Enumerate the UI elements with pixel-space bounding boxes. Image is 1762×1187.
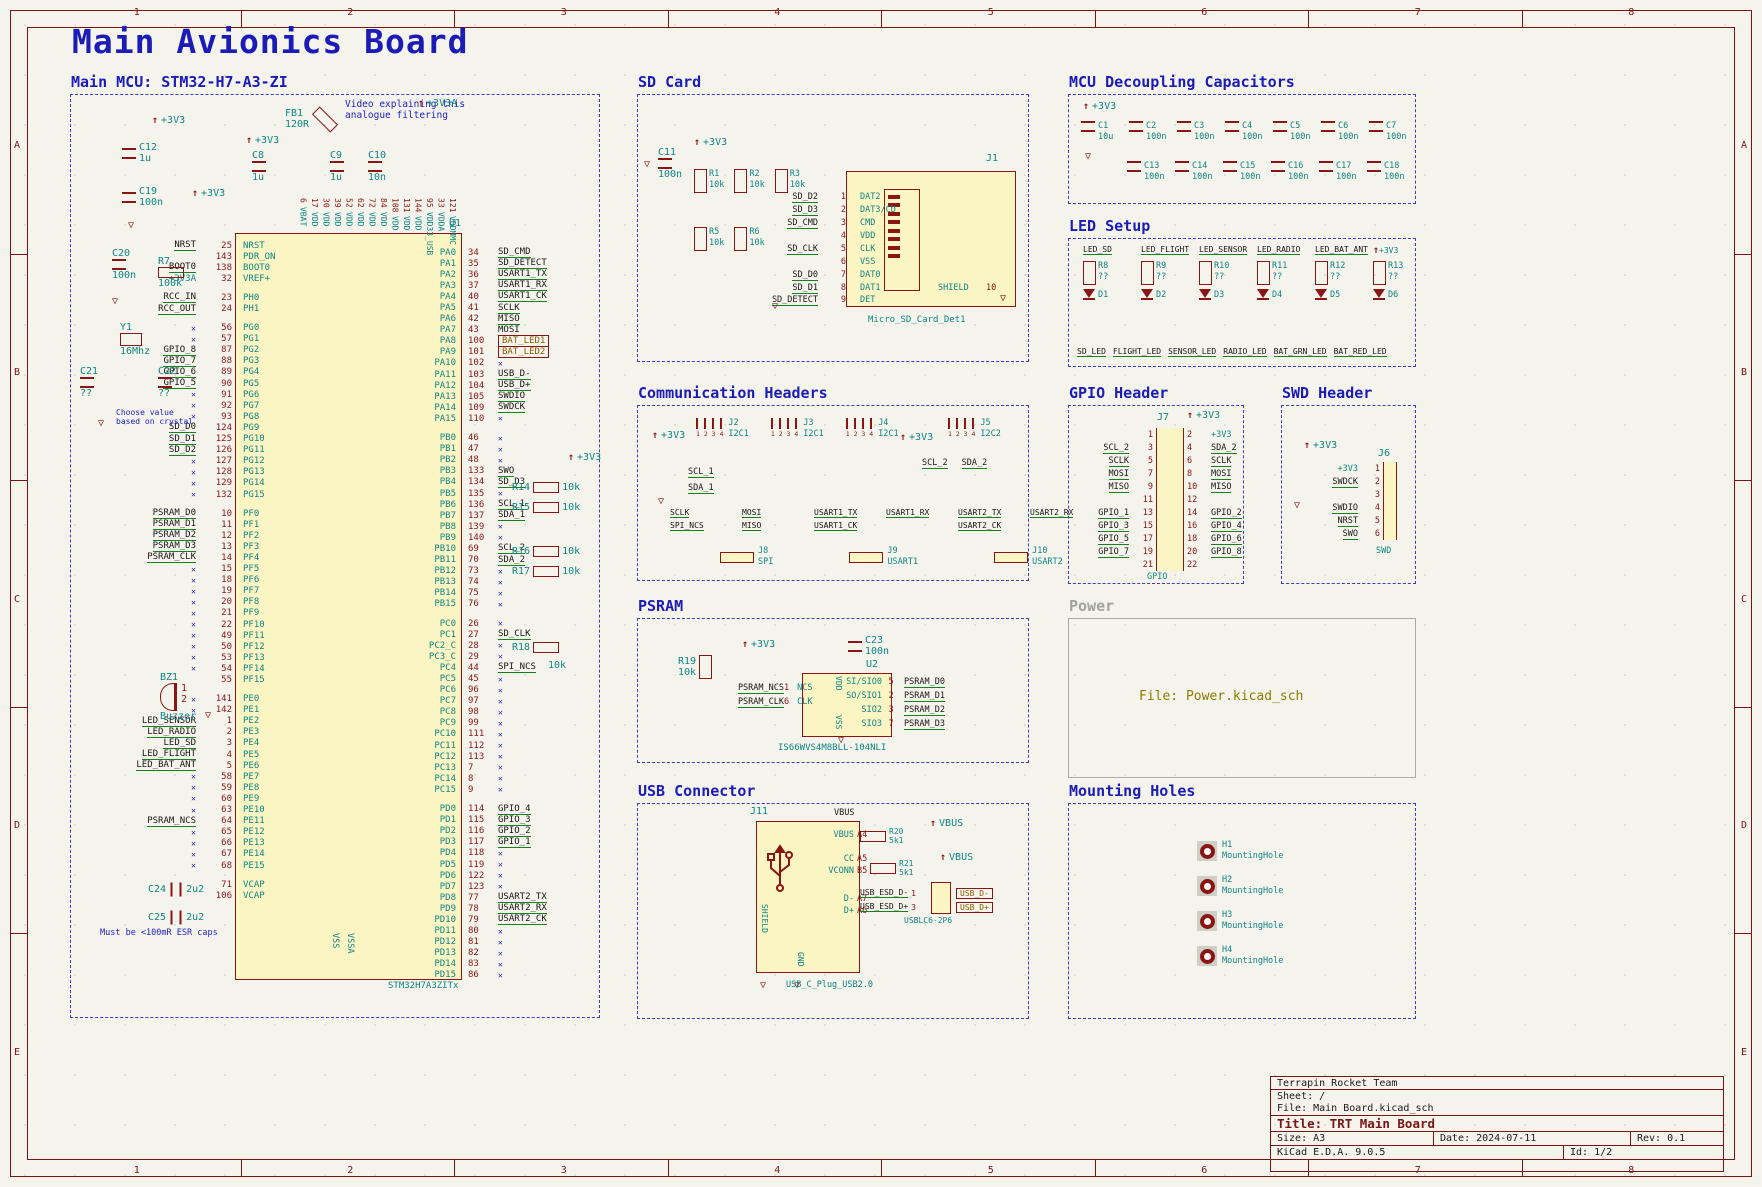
no-connect-icon[interactable]: ✕ (498, 456, 549, 465)
net-label[interactable]: SD_DETECT (498, 258, 549, 269)
net-label[interactable]: LED_RADIO (1257, 245, 1300, 257)
capacitor-c23[interactable]: C23100n (848, 635, 889, 657)
net-label[interactable]: MISO (1073, 482, 1133, 492)
no-connect-icon[interactable]: ✕ (498, 619, 549, 628)
net-label[interactable]: LED_BAT_ANT (136, 760, 196, 771)
net-label-wrap[interactable]: SCLK (670, 506, 728, 519)
led-diode[interactable]: D3 (1199, 289, 1224, 300)
esd-chip-body[interactable] (931, 882, 951, 914)
gpio-pin-row[interactable]: MOSI78MOSI (1073, 467, 1242, 480)
decoupling-capacitor[interactable]: C18100n (1367, 161, 1409, 183)
net-label[interactable]: USB_D+ (498, 380, 549, 391)
no-connect-icon[interactable]: ✕ (498, 960, 549, 969)
net-label[interactable]: SD_CLK (668, 244, 818, 254)
net-label[interactable]: USART1_CK (498, 291, 549, 302)
net-label[interactable]: BAT_LED1 (498, 336, 549, 346)
no-connect-icon[interactable]: ✕ (498, 785, 549, 794)
pin-header-symbol[interactable]: 1 2 3 4J4I2C1 (846, 418, 899, 440)
net-label[interactable]: USB_ESD_D- (860, 888, 908, 898)
net-label[interactable]: PSRAM_CLK (36, 552, 196, 563)
net-label[interactable]: FLIGHT_LED (1113, 347, 1161, 357)
net-label[interactable]: SWO (1343, 529, 1358, 540)
net-label[interactable]: USB_D- (498, 369, 549, 380)
no-connect-icon[interactable]: ✕ (498, 434, 549, 443)
net-label[interactable]: NRST (1288, 516, 1362, 526)
no-connect-icon[interactable]: ✕ (498, 730, 549, 739)
gpio-pin-row[interactable]: GPIO_11314GPIO_2 (1073, 506, 1242, 519)
no-connect-icon[interactable]: ✕ (498, 686, 549, 695)
net-label[interactable]: GPIO_8 (36, 345, 196, 356)
net-label[interactable]: PSRAM_D1 (153, 519, 196, 530)
power-flag-vbus[interactable]: ↑VBUS (940, 852, 973, 863)
net-label[interactable]: SCLK (1209, 456, 1242, 466)
net-label[interactable]: PSRAM_NCS (738, 683, 784, 694)
net-label[interactable]: SD_DETECT (668, 295, 818, 305)
net-label[interactable]: SCLK (1211, 456, 1231, 467)
no-connect-icon[interactable]: ✕ (498, 652, 549, 661)
net-label[interactable]: +3V3 (1288, 464, 1362, 474)
net-label[interactable]: SWDIO (498, 391, 525, 402)
gnd-icon[interactable]: ▽ (1000, 295, 1006, 303)
capacitor-c25[interactable]: C252u2 (148, 912, 204, 923)
capacitor-c21[interactable]: C21?? (80, 366, 98, 399)
net-label[interactable]: USART2_TX (498, 892, 549, 903)
net-label[interactable]: SD_LED (1077, 347, 1106, 357)
net-label[interactable]: SD_CMD (787, 218, 818, 229)
net-label[interactable]: GPIO_5 (1098, 534, 1129, 545)
net-label[interactable]: SD_D2 (792, 192, 818, 203)
no-connect-icon[interactable]: ✕ (498, 949, 549, 958)
no-connect-icon[interactable]: ✕ (498, 752, 549, 761)
net-label[interactable]: GPIO_3 (1073, 521, 1133, 531)
pin-header-symbol[interactable]: J10USART2 (994, 546, 1063, 568)
led-resistor[interactable]: R9?? (1141, 261, 1166, 285)
capacitor-c20[interactable]: C20100n (112, 248, 136, 281)
net-label[interactable]: SCLK (1073, 456, 1133, 466)
net-label[interactable]: SD_DETECT (772, 295, 818, 306)
net-label[interactable]: GPIO_6 (1209, 534, 1242, 544)
power-label[interactable]: +3V3 (1338, 464, 1358, 474)
buzzer-bz1[interactable]: BZ112Buzzer (160, 672, 196, 722)
note-crystal-value[interactable]: Choose value based on crystal (116, 408, 193, 426)
net-label[interactable]: SD_CLK (498, 629, 549, 640)
net-label[interactable]: SD_D3 (668, 205, 818, 215)
net-label[interactable]: SWDIO (498, 391, 549, 402)
led-resistor[interactable]: R10?? (1199, 261, 1229, 285)
mounting-hole-item[interactable]: H3MountingHole (1197, 910, 1283, 932)
no-connect-icon[interactable]: ✕ (498, 697, 549, 706)
net-label[interactable]: USART2_CK (498, 914, 547, 925)
net-label[interactable]: PSRAM_D2 (153, 530, 196, 541)
net-label-wrap[interactable]: SD_LED (1077, 347, 1106, 356)
net-label[interactable]: SD_D3 (792, 205, 818, 216)
no-connect-icon[interactable]: ✕ (36, 631, 196, 640)
pullup-resistor[interactable]: R1610k (512, 546, 580, 557)
net-label[interactable]: USART1_RX (498, 280, 549, 291)
pin-header-symbol[interactable]: J8SPI (720, 546, 773, 568)
net-label[interactable]: LED_RADIO (1257, 245, 1300, 255)
no-connect-icon[interactable]: ✕ (498, 445, 549, 454)
decoupling-capacitor[interactable]: C2100n (1129, 121, 1171, 143)
net-label[interactable]: GPIO_6 (1211, 534, 1242, 545)
net-label[interactable]: SDA_2 (1209, 443, 1242, 453)
net-label[interactable]: SWDCK (498, 402, 549, 413)
swd-pin-row[interactable]: SWO6 (1288, 527, 1397, 540)
power-flag-3v3[interactable]: ↑+3V3 (742, 639, 775, 650)
net-label[interactable]: GPIO_1 (1098, 508, 1129, 519)
net-label[interactable]: GPIO_2 (1211, 508, 1242, 519)
net-label[interactable]: MOSI (1211, 469, 1231, 480)
no-connect-icon[interactable]: ✕ (36, 587, 196, 596)
net-label[interactable]: PSRAM_D2 (36, 530, 196, 541)
decoupling-capacitor[interactable]: C14100n (1175, 161, 1217, 183)
no-connect-icon[interactable]: ✕ (36, 576, 196, 585)
no-connect-icon[interactable]: ✕ (36, 772, 196, 781)
no-connect-icon[interactable]: ✕ (498, 763, 549, 772)
net-label[interactable]: GPIO_3 (1098, 521, 1129, 532)
power-label[interactable]: +3V3 (1211, 430, 1231, 440)
power-flag-3v3[interactable]: ↑+3V3 (1187, 410, 1220, 421)
net-label[interactable]: SWO (1288, 529, 1362, 539)
capacitor-c22[interactable]: C22?? (158, 366, 176, 399)
power-flag-3v3[interactable]: ↑+3V3 (1304, 440, 1337, 451)
power-flag-3v3[interactable]: ↑+3V3 (1083, 101, 1116, 112)
net-label[interactable]: SCLK (498, 303, 520, 314)
net-label[interactable]: LED_FLIGHT (1141, 245, 1189, 255)
net-label[interactable]: BAT_LED2 (498, 347, 549, 357)
net-label[interactable]: MISO (498, 314, 549, 325)
net-label-wrap[interactable]: BAT_GRN_LED (1274, 347, 1327, 356)
net-label[interactable]: SWDIO (1332, 503, 1358, 514)
vbus-net-label[interactable]: VBUS (834, 808, 854, 818)
net-label[interactable]: SD_D2 (36, 445, 196, 456)
no-connect-icon[interactable]: ✕ (36, 609, 196, 618)
net-label[interactable]: +3V3 (1209, 430, 1242, 440)
net-label[interactable]: LED_SENSOR (1199, 245, 1247, 255)
no-connect-icon[interactable]: ✕ (498, 927, 549, 936)
net-label[interactable]: PSRAM_D1 (900, 691, 945, 701)
net-label[interactable]: LED_FLIGHT (36, 749, 196, 760)
gpio-pin-row[interactable]: SCLK56SCLK (1073, 454, 1242, 467)
net-label[interactable]: USART2_CK (958, 521, 1001, 531)
net-label[interactable]: SWO (498, 466, 549, 477)
net-label[interactable]: SWDCK (1288, 477, 1362, 487)
gpio-pin-row[interactable]: 12+3V3 (1073, 428, 1242, 441)
swd-pin-row[interactable]: 3 (1288, 488, 1397, 501)
hier-label[interactable]: USB_D+ (956, 902, 993, 913)
capacitor-c11[interactable]: C11100n (658, 147, 682, 180)
net-label[interactable]: SWDCK (498, 402, 525, 413)
gnd-icon[interactable]: ▽ (644, 161, 650, 169)
net-label[interactable]: USART2_RX (498, 903, 549, 914)
no-connect-icon[interactable]: ✕ (498, 860, 549, 869)
net-label[interactable]: LED_FLIGHT (1141, 245, 1189, 257)
no-connect-icon[interactable]: ✕ (498, 578, 549, 587)
net-label-wrap[interactable]: USART2_CK (958, 519, 1016, 532)
no-connect-icon[interactable]: ✕ (36, 620, 196, 629)
no-connect-icon[interactable]: ✕ (498, 719, 549, 728)
net-label[interactable]: SD_D1 (792, 283, 818, 294)
net-label[interactable]: USART2_TX (498, 892, 547, 903)
power-flag-3v3[interactable]: ↑+3V3 (568, 452, 601, 463)
net-label[interactable]: NRST (174, 240, 196, 251)
net-label[interactable]: SCL_2 (922, 458, 948, 469)
net-label[interactable]: RCC_IN (163, 292, 196, 303)
net-label[interactable]: GPIO_5 (1073, 534, 1133, 544)
decoupling-capacitor[interactable]: C5100n (1273, 121, 1315, 143)
gpio-pin-table[interactable]: 12+3V3SCL_234SDA_2SCLK56SCLKMOSI78MOSIMI… (1073, 428, 1242, 571)
net-label[interactable]: LED_BAT_ANT (1315, 245, 1368, 257)
net-label[interactable]: GPIO_1 (1073, 508, 1133, 518)
resistor-r18[interactable]: R18 (512, 642, 559, 653)
pin-header-symbol[interactable]: J9USART1 (849, 546, 918, 568)
no-connect-icon[interactable]: ✕ (498, 533, 549, 542)
pin-header-symbol[interactable]: 1 2 3 4J3I2C1 (771, 418, 824, 440)
capacitor-c9[interactable]: C91u (330, 150, 344, 183)
no-connect-icon[interactable]: ✕ (498, 359, 549, 368)
power-flag-3v3[interactable]: ↑+3V3 (652, 430, 685, 441)
net-label[interactable]: SCLK (670, 508, 689, 518)
decoupling-capacitor[interactable]: C17100n (1319, 161, 1361, 183)
net-label[interactable]: MOSI (1073, 469, 1133, 479)
net-label-wrap[interactable]: USART1_RX (886, 506, 944, 519)
swd-pin-row[interactable]: SWDCK2 (1288, 475, 1397, 488)
no-connect-icon[interactable]: ✕ (36, 335, 196, 344)
no-connect-icon[interactable]: ✕ (498, 871, 549, 880)
net-label[interactable]: SPI_NCS (498, 662, 536, 673)
net-label[interactable]: LED_RADIO (36, 727, 196, 738)
swd-pin-row[interactable]: SWDIO4 (1288, 501, 1397, 514)
net-label-wrap[interactable]: BAT_RED_LED (1334, 347, 1387, 356)
no-connect-icon[interactable]: ✕ (36, 324, 196, 333)
net-label[interactable]: PSRAM_D1 (904, 691, 945, 702)
led-diode[interactable]: D4 (1257, 289, 1282, 300)
net-label[interactable]: MOSI (1109, 469, 1129, 480)
net-label-wrap[interactable]: SDA_2 (962, 458, 988, 468)
net-label[interactable]: PSRAM_D2 (900, 705, 945, 715)
power-flag-3v3[interactable]: ↑+3V3 (694, 137, 727, 148)
ferrite-bead-fb1[interactable]: FB1120R (285, 108, 338, 130)
power-flag-3v3[interactable]: ↑+3V3 (246, 135, 279, 146)
power-flag-3v3[interactable]: ↑+3V3 (192, 188, 225, 199)
no-connect-icon[interactable]: ✕ (498, 414, 549, 423)
net-label[interactable]: GPIO_4 (1211, 521, 1242, 532)
net-label-wrap[interactable]: SPI_NCS (670, 519, 728, 532)
net-label[interactable]: BAT_RED_LED (1334, 347, 1387, 357)
net-label[interactable]: BAT_GRN_LED (1274, 347, 1327, 357)
net-label[interactable]: LED_SD (163, 738, 196, 749)
gnd-icon[interactable]: ▽ (1294, 502, 1300, 510)
section-power-sheet[interactable]: Power File: Power.kicad_sch (1068, 618, 1416, 778)
net-label-wrap[interactable]: SDA_1 (688, 480, 714, 496)
decoupling-capacitor[interactable]: C6100n (1321, 121, 1363, 143)
hier-label[interactable]: BAT_LED2 (498, 346, 549, 358)
no-connect-icon[interactable]: ✕ (36, 479, 196, 488)
net-label[interactable]: USART1_CK (814, 521, 857, 531)
no-connect-icon[interactable]: ✕ (498, 938, 549, 947)
gpio-pin-row[interactable]: 1112 (1073, 493, 1242, 506)
no-connect-icon[interactable]: ✕ (36, 850, 196, 859)
net-label[interactable]: MOSI (1209, 469, 1242, 479)
no-connect-icon[interactable]: ✕ (36, 468, 196, 477)
net-label[interactable]: GPIO_8 (163, 345, 196, 356)
capacitor-c24[interactable]: C242u2 (148, 884, 204, 895)
net-label[interactable]: MOSI (498, 325, 520, 336)
swd-pin-row[interactable]: +3V31 (1288, 462, 1397, 475)
led-diode[interactable]: D5 (1315, 289, 1340, 300)
net-label[interactable]: SD_DETECT (498, 258, 547, 269)
net-label[interactable]: PSRAM_D3 (36, 541, 196, 552)
no-connect-icon[interactable]: ✕ (498, 849, 549, 858)
net-label[interactable]: USART1_TX (498, 269, 549, 280)
net-label[interactable]: USART1_RX (886, 508, 929, 518)
net-label[interactable]: GPIO_4 (1209, 521, 1242, 531)
net-label[interactable]: MISO (1109, 482, 1129, 493)
net-label[interactable]: MISO (742, 521, 761, 531)
pullup-resistor[interactable]: R1710k (512, 566, 580, 577)
decoupling-capacitor[interactable]: C16100n (1271, 161, 1313, 183)
led-resistor[interactable]: R12?? (1315, 261, 1345, 285)
net-label[interactable]: GPIO_1 (498, 837, 549, 848)
no-connect-icon[interactable]: ✕ (498, 675, 549, 684)
no-connect-icon[interactable]: ✕ (498, 522, 549, 531)
net-label[interactable]: PSRAM_NCS (147, 816, 196, 827)
capacitor-c10[interactable]: C1010n (368, 150, 386, 183)
resistor-r7[interactable]: R7100k (158, 256, 184, 289)
gnd-icon[interactable]: ▽ (205, 712, 211, 720)
net-label[interactable]: USB_D- (498, 369, 531, 380)
net-label[interactable]: SDA_2 (1211, 443, 1237, 454)
net-label[interactable]: MOSI (742, 508, 761, 518)
hier-label[interactable]: USB_D- (956, 888, 993, 899)
net-label[interactable]: SD_D1 (169, 434, 196, 445)
net-label[interactable]: GPIO_8 (1211, 547, 1242, 558)
no-connect-icon[interactable]: ✕ (36, 653, 196, 662)
net-label[interactable]: PSRAM_D3 (153, 541, 196, 552)
net-label[interactable]: RCC_OUT (158, 304, 196, 315)
net-label[interactable]: SD_D2 (668, 192, 818, 202)
net-label[interactable]: USB_ESD_D+ (860, 902, 908, 912)
pullup-resistor[interactable]: R1510k (512, 502, 580, 513)
net-label[interactable]: LED_BAT_ANT (1315, 245, 1368, 255)
decoupling-capacitor[interactable]: C110u (1081, 121, 1123, 143)
power-flag-3v3[interactable]: ↑+3V3 (900, 432, 933, 443)
net-label[interactable]: LED_BAT_ANT (36, 760, 196, 771)
no-connect-icon[interactable]: ✕ (36, 642, 196, 651)
gnd-icon[interactable]: ▽ (772, 303, 778, 311)
pin-header-symbol[interactable]: 1 2 3 4J2I2C1 (696, 418, 749, 440)
no-connect-icon[interactable]: ✕ (36, 806, 196, 815)
gpio-pin-row[interactable]: GPIO_71920GPIO_8 (1073, 545, 1242, 558)
gpio-pin-row[interactable]: GPIO_51718GPIO_6 (1073, 532, 1242, 545)
gnd-icon[interactable]: ▽ (658, 498, 664, 506)
net-label[interactable]: PSRAM_NCS (36, 816, 196, 827)
gpio-pin-row[interactable]: GPIO_31516GPIO_4 (1073, 519, 1242, 532)
net-label-wrap[interactable]: MISO (742, 519, 800, 532)
gnd-icon[interactable]: ▽ (128, 222, 134, 230)
mounting-hole-item[interactable]: H1MountingHole (1197, 840, 1283, 862)
net-label[interactable]: SD_D0 (792, 270, 818, 281)
capacitor-c12[interactable]: C121u (122, 142, 157, 164)
net-label-wrap[interactable]: USART1_TX (814, 506, 872, 519)
net-label[interactable]: USB_D+ (498, 380, 531, 391)
decoupling-capacitor[interactable]: C7100n (1369, 121, 1411, 143)
no-connect-icon[interactable]: ✕ (36, 839, 196, 848)
mounting-hole-item[interactable]: H2MountingHole (1197, 875, 1283, 897)
net-label[interactable]: GPIO_3 (498, 815, 531, 826)
decoupling-capacitor[interactable]: C13100n (1127, 161, 1169, 183)
net-label[interactable]: SCL_1 (688, 467, 714, 478)
capacitor-c8[interactable]: C81u (252, 150, 266, 183)
no-connect-icon[interactable]: ✕ (36, 490, 196, 499)
no-connect-icon[interactable]: ✕ (36, 794, 196, 803)
net-label-wrap[interactable]: FLIGHT_LED (1113, 347, 1161, 356)
net-label[interactable]: SD_CMD (498, 247, 531, 258)
gnd-icon[interactable]: ▽ (760, 982, 766, 990)
no-connect-icon[interactable]: ✕ (36, 565, 196, 574)
net-label[interactable]: PSRAM_CLK (738, 697, 784, 708)
gpio-pin-row[interactable]: MISO910MISO (1073, 480, 1242, 493)
led-diode[interactable]: D6 (1373, 289, 1398, 300)
net-label-wrap[interactable]: SCL_1 (688, 464, 714, 480)
net-label[interactable]: SPI_NCS (670, 521, 704, 531)
net-label[interactable]: USART1_CK (498, 291, 547, 302)
capacitor-c19[interactable]: C19100n (122, 186, 163, 208)
pin-header-symbol[interactable]: 1 2 3 4J5I2C2 (948, 418, 1001, 440)
net-label[interactable]: GPIO_3 (498, 815, 549, 826)
net-label[interactable]: ↑+3V3 (1373, 245, 1398, 257)
swd-pin-row[interactable]: NRST5 (1288, 514, 1397, 527)
net-label[interactable]: GPIO_7 (1098, 547, 1129, 558)
power-flag-3v3a[interactable]: ↑+3V3A (418, 98, 457, 109)
net-label-wrap[interactable]: SCL_2 (922, 458, 948, 468)
net-label[interactable]: PSRAM_NCS (654, 683, 784, 693)
no-connect-icon[interactable]: ✕ (498, 708, 549, 717)
gnd-icon[interactable]: ▽ (98, 420, 104, 428)
net-label[interactable]: GPIO_4 (498, 804, 549, 815)
power-flag-vbus[interactable]: ↑VBUS (930, 818, 963, 829)
gnd-icon[interactable]: ▽ (1085, 153, 1091, 161)
mounting-hole-item[interactable]: H4MountingHole (1197, 945, 1283, 967)
net-label[interactable]: SPI_NCS (498, 662, 549, 673)
no-connect-icon[interactable]: ✕ (498, 589, 549, 598)
net-label[interactable]: USART2_TX (958, 508, 1001, 518)
no-connect-icon[interactable]: ✕ (498, 600, 549, 609)
pullup-resistor[interactable]: R1410k (512, 482, 580, 493)
net-label[interactable]: GPIO_2 (498, 826, 549, 837)
net-label[interactable]: PSRAM_D0 (36, 508, 196, 519)
net-label[interactable]: SD_D1 (668, 283, 818, 293)
net-label[interactable]: PSRAM_D0 (904, 677, 945, 688)
no-connect-icon[interactable]: ✕ (498, 774, 549, 783)
led-diode[interactable]: D1 (1083, 289, 1108, 300)
net-label[interactable]: MISO (498, 314, 520, 325)
net-label-wrap[interactable]: USART2_TX (958, 506, 1016, 519)
net-label[interactable]: MISO (1211, 482, 1231, 493)
net-label[interactable]: LED_SD (1083, 245, 1112, 257)
net-label[interactable]: GPIO_1 (498, 837, 531, 848)
net-label[interactable]: SD_D2 (169, 445, 196, 456)
net-label[interactable]: GPIO_4 (498, 804, 531, 815)
net-label[interactable]: LED_FLIGHT (142, 749, 196, 760)
note-esr-caps[interactable]: Must be <100mR ESR caps (100, 928, 218, 939)
net-label[interactable]: SD_CMD (498, 247, 549, 258)
net-label[interactable]: USART1_TX (814, 508, 857, 518)
net-label[interactable]: NRST (1338, 516, 1358, 527)
net-label[interactable]: SD_CMD (668, 218, 818, 228)
net-label[interactable]: USART2_RX (498, 903, 547, 914)
no-connect-icon[interactable]: ✕ (498, 971, 549, 980)
